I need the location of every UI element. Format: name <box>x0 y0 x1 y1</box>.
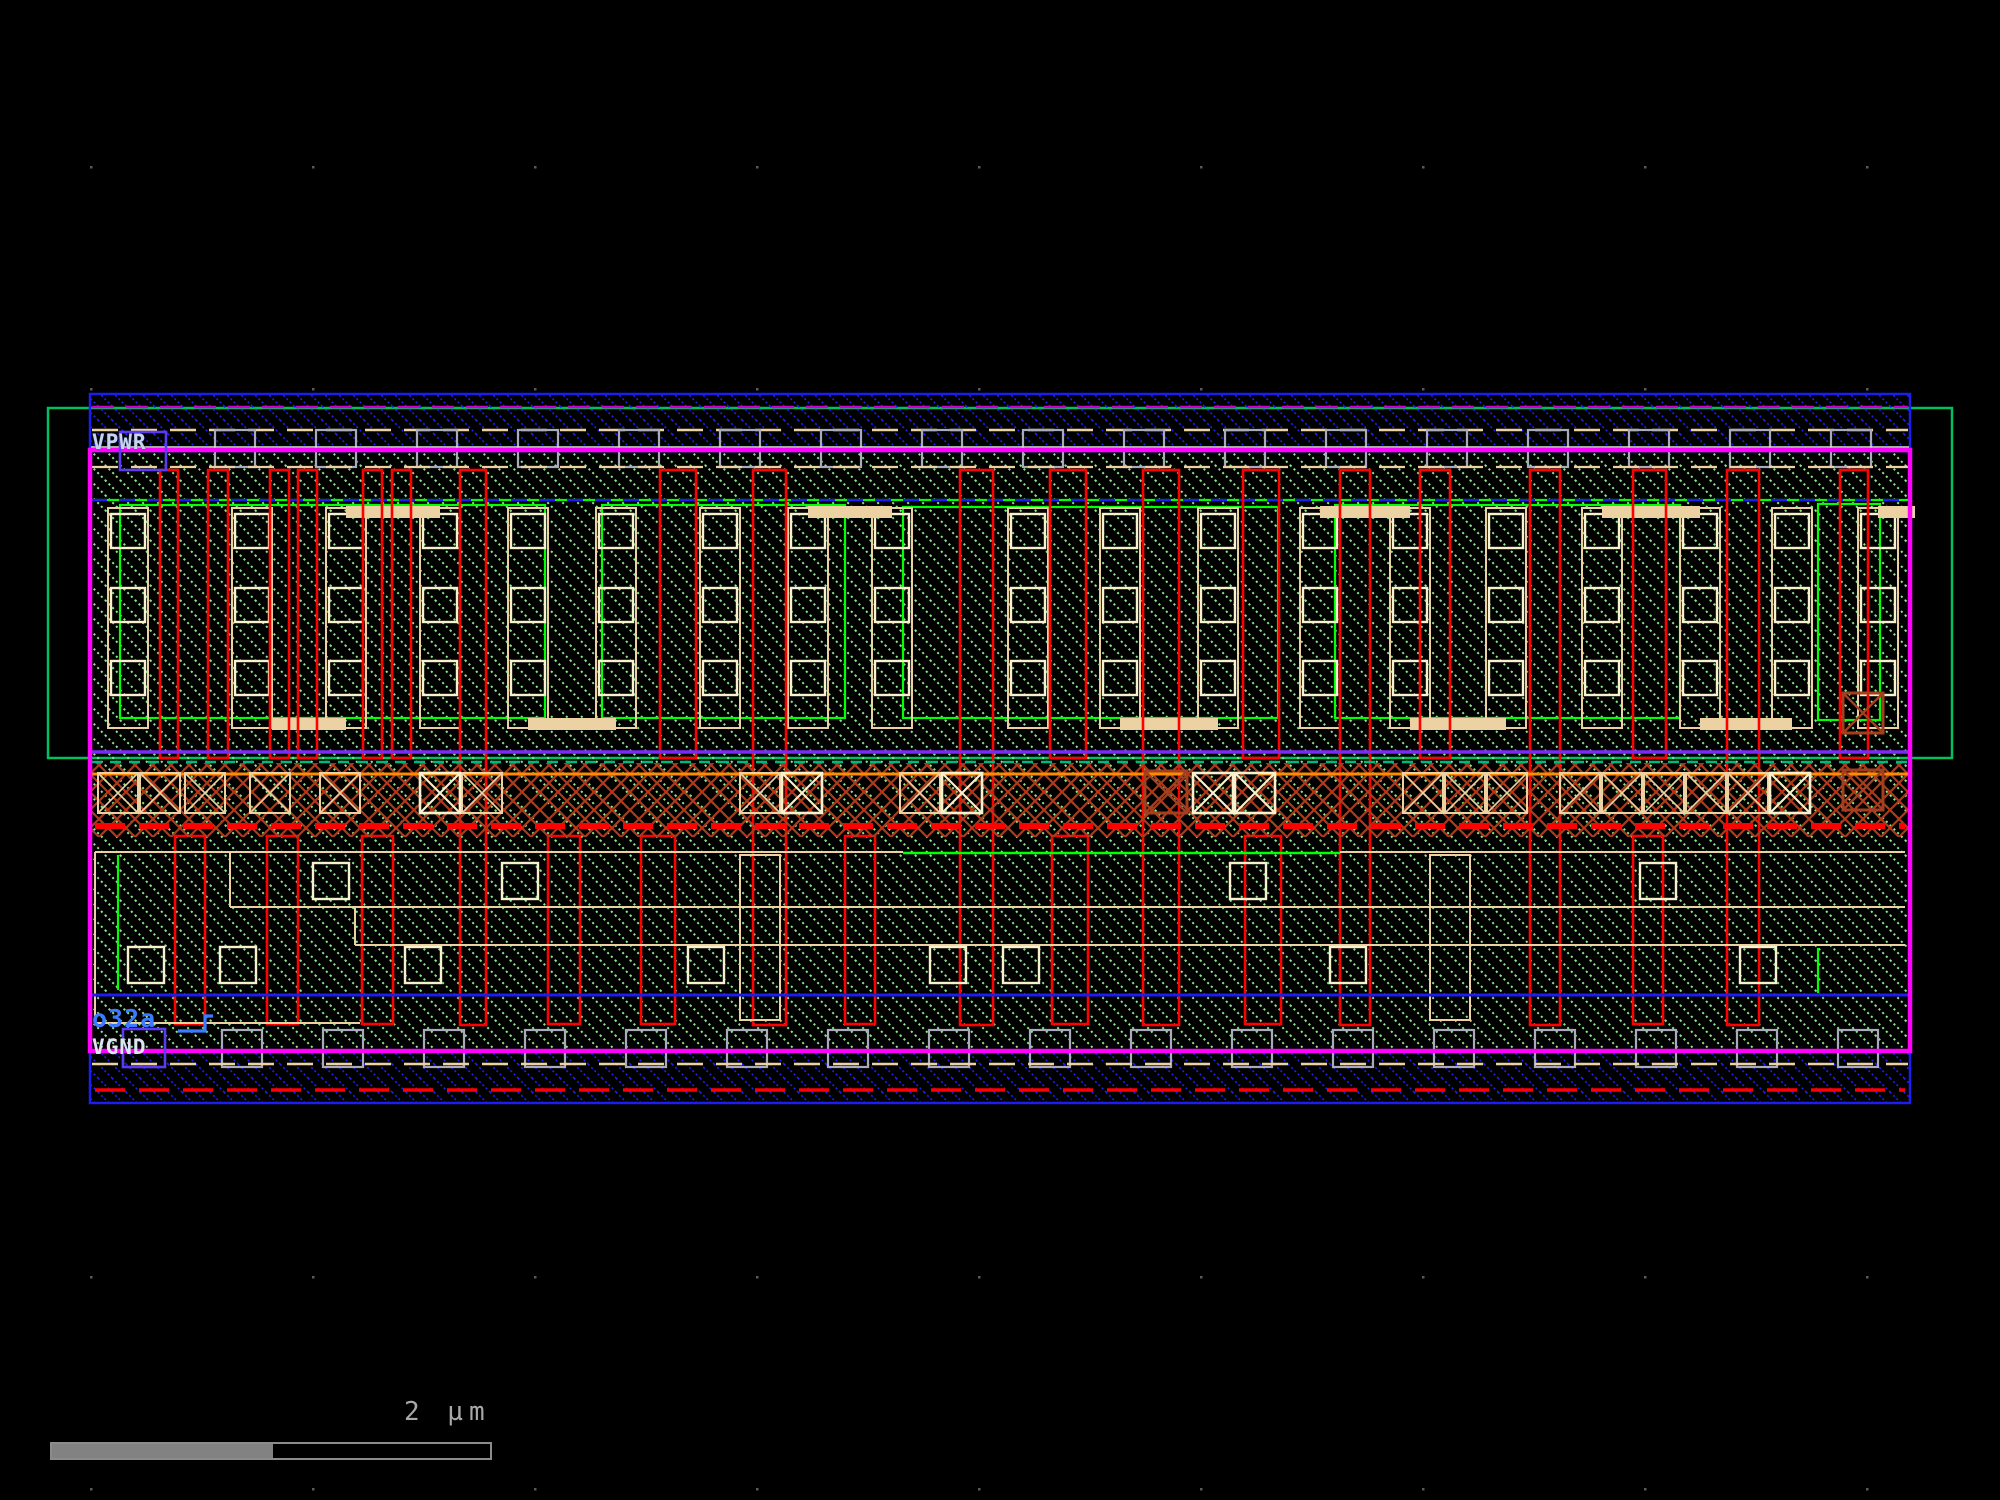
grid-dot <box>1200 166 1203 169</box>
grid-dot <box>1422 388 1425 391</box>
grid-dot <box>756 1276 759 1279</box>
scale-bar <box>50 1442 492 1460</box>
grid-dot <box>1866 166 1869 169</box>
grid-dot <box>1866 1488 1869 1491</box>
grid-dot <box>978 1488 981 1491</box>
grid-dot <box>312 166 315 169</box>
layout-viewer-canvas[interactable]: VPWR o32a VGND 2 µm <box>0 0 2000 1500</box>
grid-dot <box>756 1488 759 1491</box>
grid-dot <box>978 388 981 391</box>
grid-dot <box>1644 1276 1647 1279</box>
grid-dot <box>90 1276 93 1279</box>
cell-name-label: o32a <box>92 1006 156 1031</box>
grid-dot <box>1422 1488 1425 1491</box>
grid-dot <box>312 1488 315 1491</box>
grid-dot <box>1866 1276 1869 1279</box>
grid-dot <box>90 166 93 169</box>
grid-dot <box>1866 388 1869 391</box>
grid-dot <box>534 1276 537 1279</box>
grid-dot <box>1644 1488 1647 1491</box>
grid-dot <box>1644 388 1647 391</box>
grid-dot <box>978 166 981 169</box>
grid-dot <box>534 166 537 169</box>
grid-dot <box>1644 166 1647 169</box>
grid-dot <box>1422 1276 1425 1279</box>
grid-dot <box>90 388 93 391</box>
grid-dot <box>90 1488 93 1491</box>
grid-dot <box>1200 1488 1203 1491</box>
grid-dot <box>756 166 759 169</box>
grid-dot <box>312 1276 315 1279</box>
chip-layout-drawing <box>0 0 2000 1500</box>
cell-interior <box>91 451 1915 1051</box>
grid-dot <box>1422 166 1425 169</box>
scale-bar-filled-half <box>52 1444 273 1458</box>
grid-dot <box>756 388 759 391</box>
grid-dot <box>1200 388 1203 391</box>
grid-dot <box>534 388 537 391</box>
scale-bar-label: 2 µm <box>404 1399 491 1425</box>
grid-dot <box>978 1276 981 1279</box>
grid-dot <box>534 1488 537 1491</box>
grid-dot <box>1200 1276 1203 1279</box>
vgnd-port-label: VGND <box>92 1037 147 1058</box>
grid-dot <box>312 388 315 391</box>
met1-rail <box>90 394 1910 451</box>
vpwr-port-label: VPWR <box>92 432 147 453</box>
